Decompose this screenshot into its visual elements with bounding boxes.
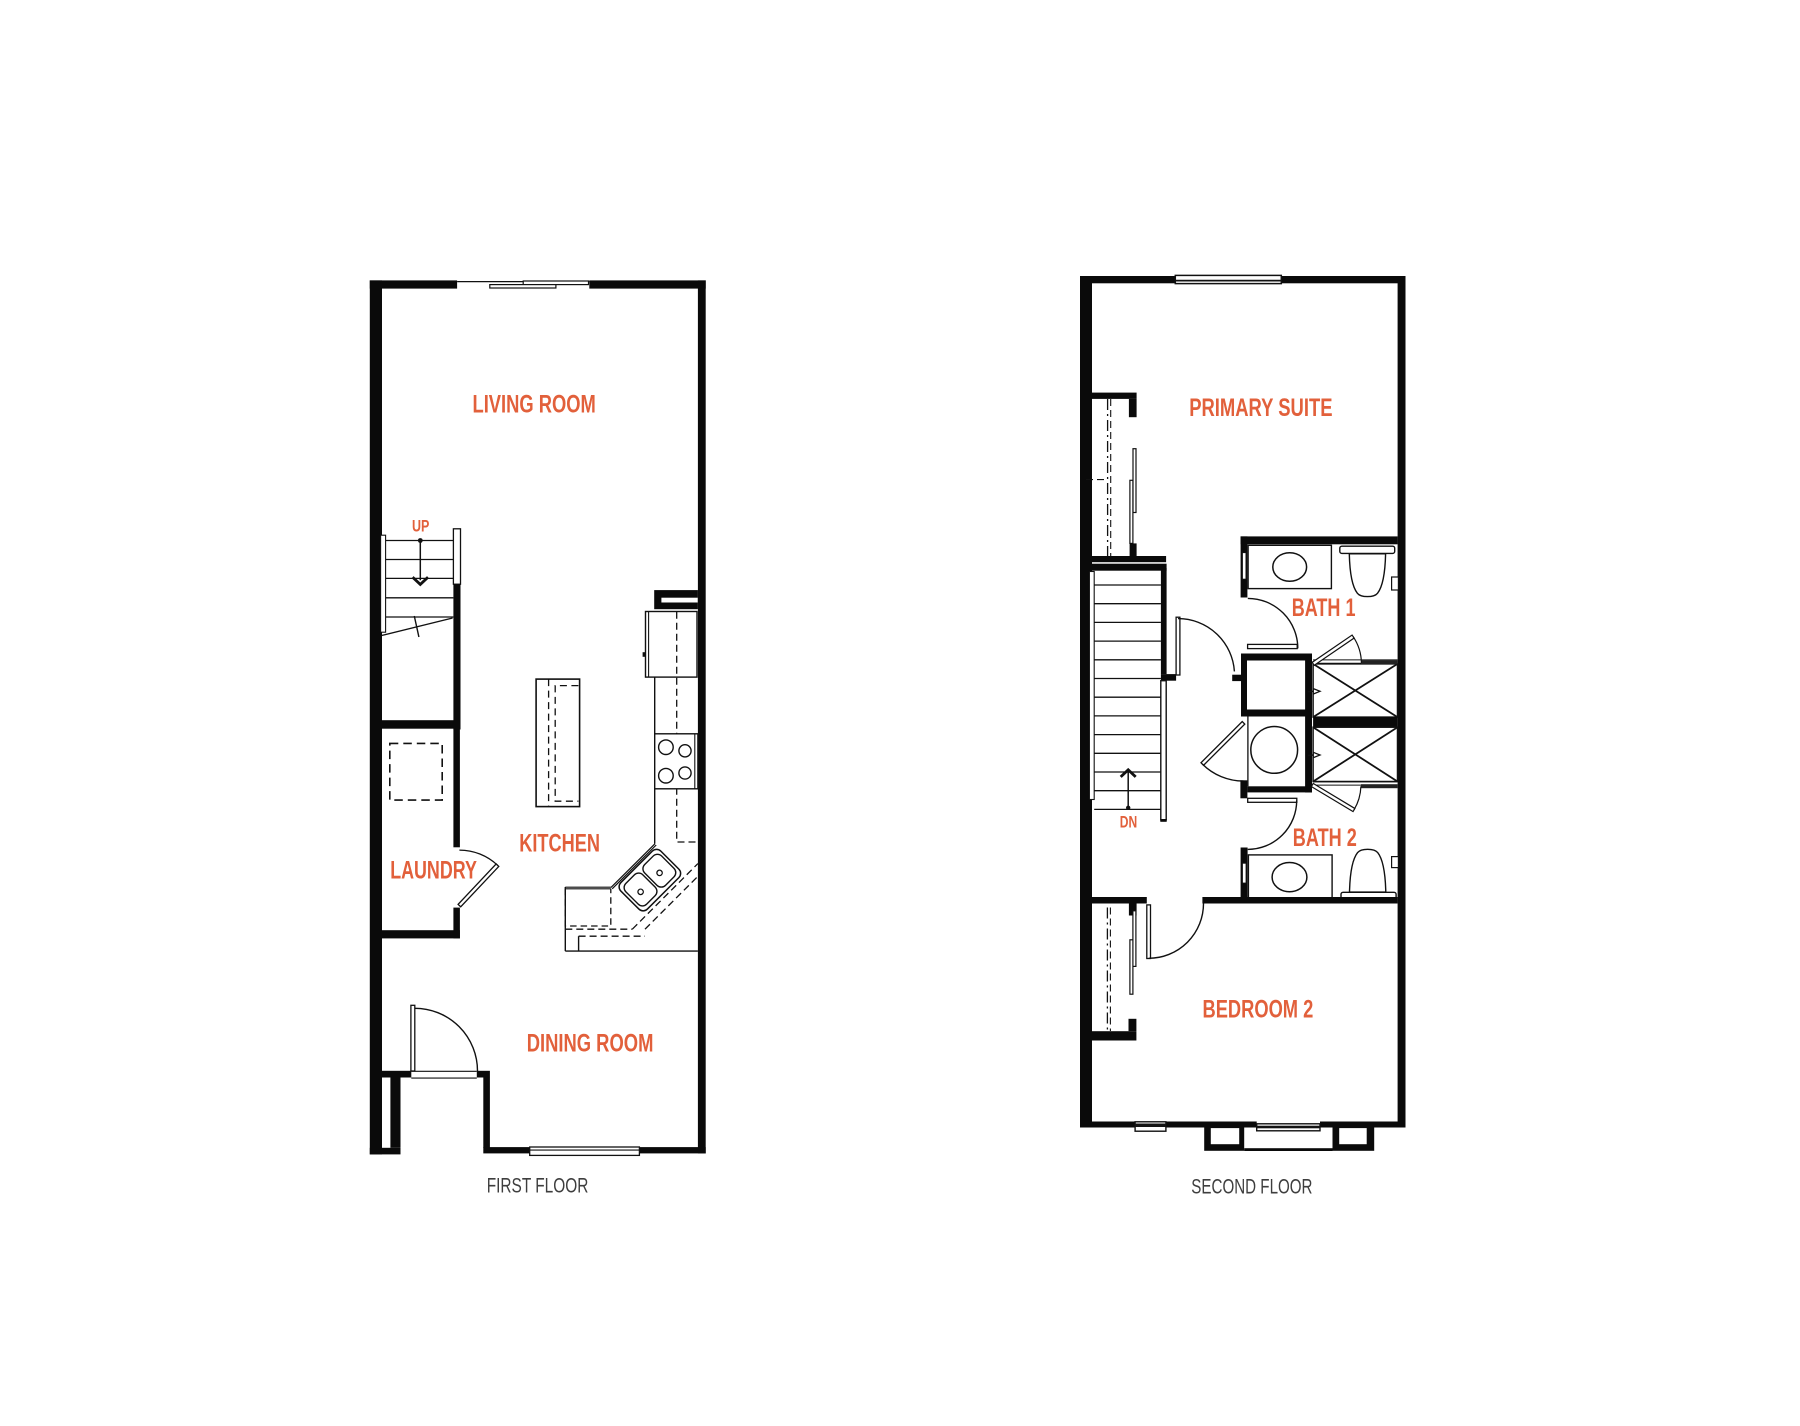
svg-text:KITCHEN: KITCHEN [519,830,600,858]
svg-text:BEDROOM 2: BEDROOM 2 [1203,996,1314,1024]
svg-text:FIRST FLOOR: FIRST FLOOR [487,1174,589,1197]
svg-text:LIVING ROOM: LIVING ROOM [473,390,596,418]
svg-text:LAUNDRY: LAUNDRY [390,856,477,884]
svg-text:DN: DN [1120,813,1137,832]
svg-text:PRIMARY SUITE: PRIMARY SUITE [1189,394,1332,422]
svg-text:BATH 2: BATH 2 [1293,824,1357,852]
svg-text:BATH 1: BATH 1 [1292,594,1356,622]
svg-text:UP: UP [412,516,429,535]
svg-text:SECOND FLOOR: SECOND FLOOR [1191,1175,1312,1198]
svg-text:DINING ROOM: DINING ROOM [527,1030,654,1058]
